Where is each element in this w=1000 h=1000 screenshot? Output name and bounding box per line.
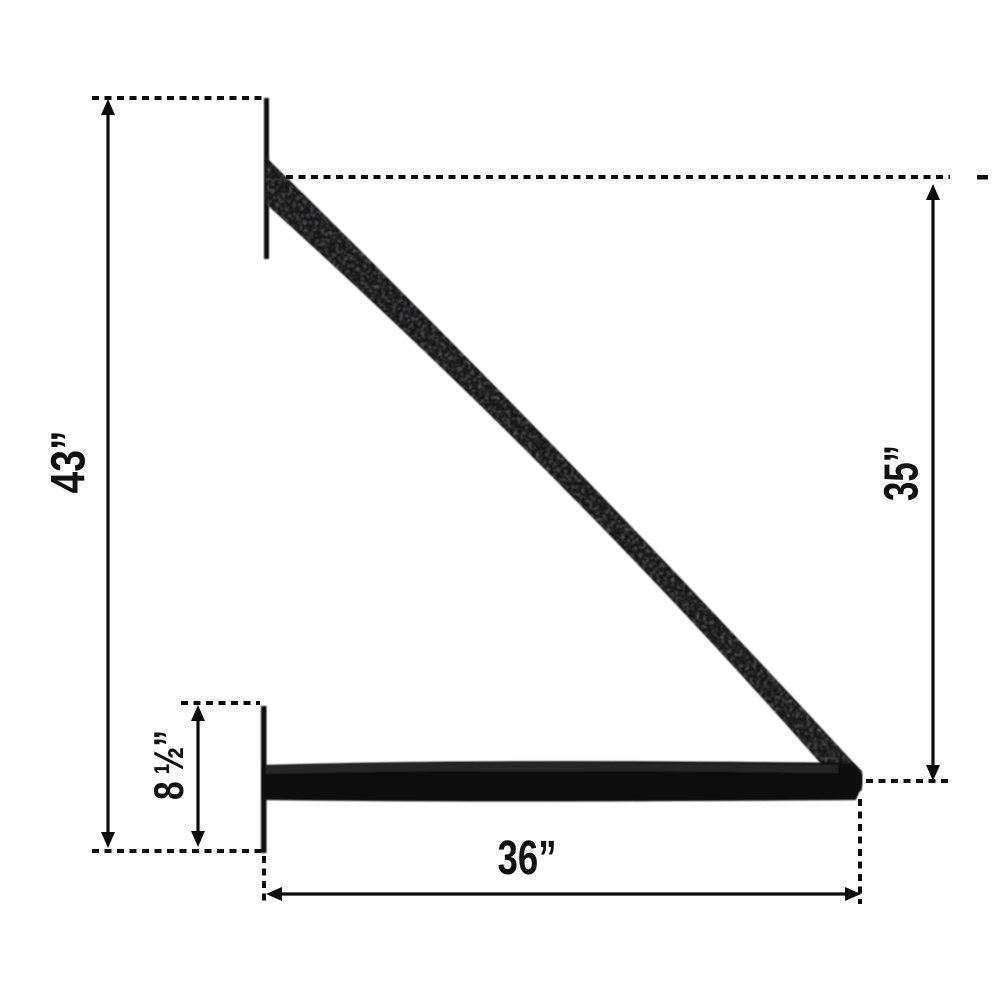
svg-text:8 ½”: 8 ½” <box>145 730 192 800</box>
svg-text:36”: 36” <box>498 832 557 885</box>
svg-text:43”: 43” <box>43 431 96 494</box>
svg-text:35”: 35” <box>876 445 929 501</box>
